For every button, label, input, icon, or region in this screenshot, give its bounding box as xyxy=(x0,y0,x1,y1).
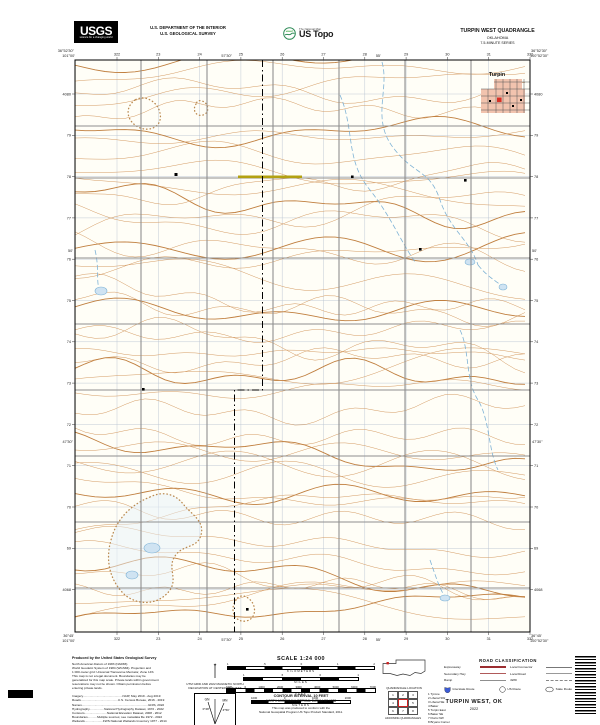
northing-label-right: 4068 xyxy=(534,588,542,592)
northing-label-left: 73 xyxy=(67,382,71,386)
easting-label-bottom: 26 xyxy=(280,637,284,641)
building-square xyxy=(351,176,354,179)
adjoining-cell: 3 xyxy=(408,691,418,699)
building-square xyxy=(464,179,467,182)
road-class-label: 4WD xyxy=(510,678,517,682)
road-class-label: Expressway xyxy=(444,665,461,669)
route-shield-label: Interstate Route xyxy=(453,687,475,691)
svg-text:★: ★ xyxy=(213,662,217,667)
easting-label-top: 28 xyxy=(363,53,367,57)
corner-lat-tr: 36°52'30" xyxy=(531,49,548,53)
northing-label-left: 70 xyxy=(67,505,71,509)
credit-line: Produced by the United States Geological… xyxy=(72,656,232,661)
road-class-sample-line xyxy=(546,673,572,674)
road-classification-legend: ROAD CLASSIFICATION ExpresswaySecondary … xyxy=(444,658,572,693)
adjoining-cell: 1 xyxy=(388,691,398,699)
road-class-sample-line xyxy=(480,673,506,674)
easting-label-bottom: 322 xyxy=(114,637,120,641)
scale-tick-label: 0 xyxy=(245,686,247,689)
easting-label-bottom: 24 xyxy=(197,637,201,641)
easting-label-top: 29 xyxy=(404,53,408,57)
easting-label-bottom: 29 xyxy=(404,637,408,641)
easting-label-bottom: 27 xyxy=(321,637,325,641)
scale-tick-label: 1000 xyxy=(258,686,264,689)
road-class-label: Secondary Hwy xyxy=(444,672,466,676)
corner-registration-mark xyxy=(8,690,33,698)
easting-label-top: 322 xyxy=(114,53,120,57)
road-class-left-column: ExpresswaySecondary HwyRamp xyxy=(444,665,506,685)
easting-label-bottom: 31 xyxy=(487,637,491,641)
road-classification-title: ROAD CLASSIFICATION xyxy=(444,658,572,663)
easting-label-top: 23 xyxy=(156,53,160,57)
state-locator: QUADRANGLE LOCATION xyxy=(381,658,427,690)
edge-tick-right-1: 50' xyxy=(532,249,537,253)
road-class-label: Local Connector xyxy=(510,665,533,669)
northing-label-left: 79 xyxy=(67,134,71,138)
standard-line-2: National Geospatial Program US Topo Prod… xyxy=(226,710,376,714)
road-class-row: Local Road xyxy=(510,672,572,676)
vertical-datum-note: NORTH AMERICAN VERTICAL DATUM OF 1988 xyxy=(226,699,376,703)
scale-tick-label: 1 xyxy=(357,674,359,677)
route-shield-item: US Route xyxy=(499,686,521,693)
easting-label-bottom: 28 xyxy=(363,637,367,641)
edge-tick-top-2: 55' xyxy=(376,54,381,58)
corner-lon-tr: 100°52'30" xyxy=(530,54,549,58)
edge-tick-right-2: 47'30" xyxy=(532,440,543,444)
pond xyxy=(499,284,507,290)
town-label: Turpin xyxy=(489,72,505,78)
northing-label-left: 72 xyxy=(67,423,71,427)
edge-tick-top-1: 57'30" xyxy=(221,54,232,58)
scale-tick-label: 7000 xyxy=(370,686,376,689)
scale-tick-label: .5 xyxy=(263,663,265,666)
easting-label-bottom: 30 xyxy=(445,637,449,641)
adjoining-cell: 4 xyxy=(388,699,398,707)
adjoining-cell: 6 xyxy=(388,707,398,715)
northing-label-right: 73 xyxy=(534,382,538,386)
contour-interval-note: CONTOUR INTERVAL 10 FEET xyxy=(226,694,376,698)
building-square xyxy=(175,173,178,176)
route-shield-label: US Route xyxy=(507,687,520,691)
turpin-builtup-block xyxy=(494,79,522,89)
northing-label-right: 76 xyxy=(534,258,538,262)
northing-label-left: 77 xyxy=(67,216,71,220)
easting-label-top: 30 xyxy=(445,53,449,57)
pond xyxy=(126,571,138,579)
easting-label-top: 26 xyxy=(280,53,284,57)
scale-tick-label: 4000 xyxy=(314,686,320,689)
gn-label: GN xyxy=(205,697,210,701)
scale-bar-unit: KILOMETERS xyxy=(227,670,375,673)
northing-label-left: 78 xyxy=(67,175,71,179)
easting-label-bottom: 23 xyxy=(156,637,160,641)
scale-tick-label: .5 xyxy=(281,674,283,677)
northing-label-left: 71 xyxy=(67,464,71,468)
corner-lat-br: 36°45' xyxy=(531,634,542,638)
gn-value: 0°28' xyxy=(203,707,210,711)
northing-label-left: 4068 xyxy=(63,588,71,592)
road-class-sample-line xyxy=(480,666,506,668)
pond xyxy=(144,543,160,553)
route-shield-item: State Route xyxy=(545,686,572,693)
road-class-row: 4WD xyxy=(510,678,572,682)
corner-lat-bl: 36°45' xyxy=(63,634,74,638)
easting-label-top: 24 xyxy=(197,53,201,57)
scale-bar: 1.5012KILOMETERS xyxy=(227,663,375,673)
corner-lon-br: 100°52'30" xyxy=(530,639,549,643)
northing-label-left: 74 xyxy=(67,340,71,344)
road-class-right-column: Local ConnectorLocal Road4WD xyxy=(510,665,572,685)
easting-label-top: 31 xyxy=(487,53,491,57)
adjoining-cell: 2 xyxy=(398,691,408,699)
corner-lon-tl: 101°00' xyxy=(62,54,75,58)
scale-tick-label: 1 xyxy=(337,663,339,666)
product-standard-note: This map was produced to conform with th… xyxy=(226,706,376,714)
road-class-sample-line xyxy=(546,680,572,681)
road-class-row: Local Connector xyxy=(510,665,572,669)
map-sheet-graphic: Turpin 322322232324242525262627272828292… xyxy=(0,0,600,650)
northing-label-left: 75 xyxy=(67,299,71,303)
northing-label-left: 76 xyxy=(67,258,71,262)
edge-tick-bottom-2: 55' xyxy=(376,638,381,642)
road-class-label: Local Road xyxy=(510,672,526,676)
northing-label-right: 71 xyxy=(534,464,538,468)
sheet-name-block: TURPIN WEST, OK 2022 xyxy=(414,699,534,711)
northing-label-left: 69 xyxy=(67,547,71,551)
edge-tick-left-1: 50' xyxy=(68,249,73,253)
scale-tick-label: 0 xyxy=(320,674,322,677)
scale-tick-label: 5000 xyxy=(333,686,339,689)
state-route-oval-icon xyxy=(545,686,554,693)
scale-tick-label: 6000 xyxy=(351,686,357,689)
barcode xyxy=(575,656,596,716)
northing-label-right: 77 xyxy=(534,216,538,220)
northing-label-right: 78 xyxy=(534,175,538,179)
building-square xyxy=(419,248,422,251)
adjoining-cell-center xyxy=(398,699,408,707)
quadrangle-location-label: QUADRANGLE LOCATION xyxy=(381,686,427,690)
corner-lat-tl: 36°52'30" xyxy=(58,49,75,53)
building-square xyxy=(142,388,145,391)
northing-label-right: 79 xyxy=(534,134,538,138)
northing-label-right: 4080 xyxy=(534,92,542,96)
adjoining-label: ADJOINING QUADRANGLES xyxy=(383,717,423,720)
road-class-label: Ramp xyxy=(444,678,452,682)
scale-tick-label: 1 xyxy=(227,663,229,666)
scale-tick-label: 2 xyxy=(373,663,375,666)
interstate-shield-icon xyxy=(444,686,451,693)
road-class-row: Expressway xyxy=(444,665,506,669)
oklahoma-outline-icon xyxy=(382,658,426,680)
scale-tick-label: 1 xyxy=(243,674,245,677)
corner-lon-bl: 101°00' xyxy=(62,639,75,643)
northing-label-right: 75 xyxy=(534,299,538,303)
usgs-topo-map-sheet: USGS science for a changing world U.S. D… xyxy=(0,0,600,725)
building-square xyxy=(246,608,249,611)
pond xyxy=(95,287,107,295)
us-route-shield-icon xyxy=(499,686,506,693)
adjoining-quad-name: 8 Bryans Corner xyxy=(428,720,473,724)
northing-label-right: 70 xyxy=(534,505,538,509)
adjoining-cell: 7 xyxy=(398,707,408,715)
scale-tick-label: 2000 xyxy=(277,686,283,689)
road-class-sample-line xyxy=(546,667,572,668)
scale-tick-label: 1000 xyxy=(226,686,232,689)
route-shield-legend: Interstate RouteUS RouteState Route xyxy=(444,686,572,693)
route-shield-item: Interstate Route xyxy=(444,686,475,693)
edge-tick-bottom-1: 57'30" xyxy=(221,638,232,642)
school-building-red xyxy=(497,98,502,103)
scale-tick-label: 0 xyxy=(301,663,303,666)
northing-label-right: 72 xyxy=(534,423,538,427)
northing-label-right: 69 xyxy=(534,547,538,551)
easting-label-top: 27 xyxy=(321,53,325,57)
sheet-name: TURPIN WEST, OK xyxy=(414,699,534,705)
route-shield-label: State Route xyxy=(556,687,572,691)
road-class-sample-line xyxy=(480,680,506,681)
road-class-row: Ramp xyxy=(444,678,506,682)
easting-label-top: 25 xyxy=(239,53,243,57)
easting-label-bottom: 25 xyxy=(239,637,243,641)
scale-tick-label: 3000 xyxy=(296,686,302,689)
edge-tick-left-2: 47'30" xyxy=(62,440,73,444)
pond xyxy=(465,259,475,265)
northing-label-right: 74 xyxy=(534,340,538,344)
scale-bar: 1.501MILES xyxy=(243,674,359,684)
pond xyxy=(440,595,450,601)
northing-label-left: 4080 xyxy=(63,92,71,96)
road-class-row: Secondary Hwy xyxy=(444,672,506,676)
sheet-year: 2022 xyxy=(414,707,534,711)
quad-location-marker xyxy=(387,662,389,664)
